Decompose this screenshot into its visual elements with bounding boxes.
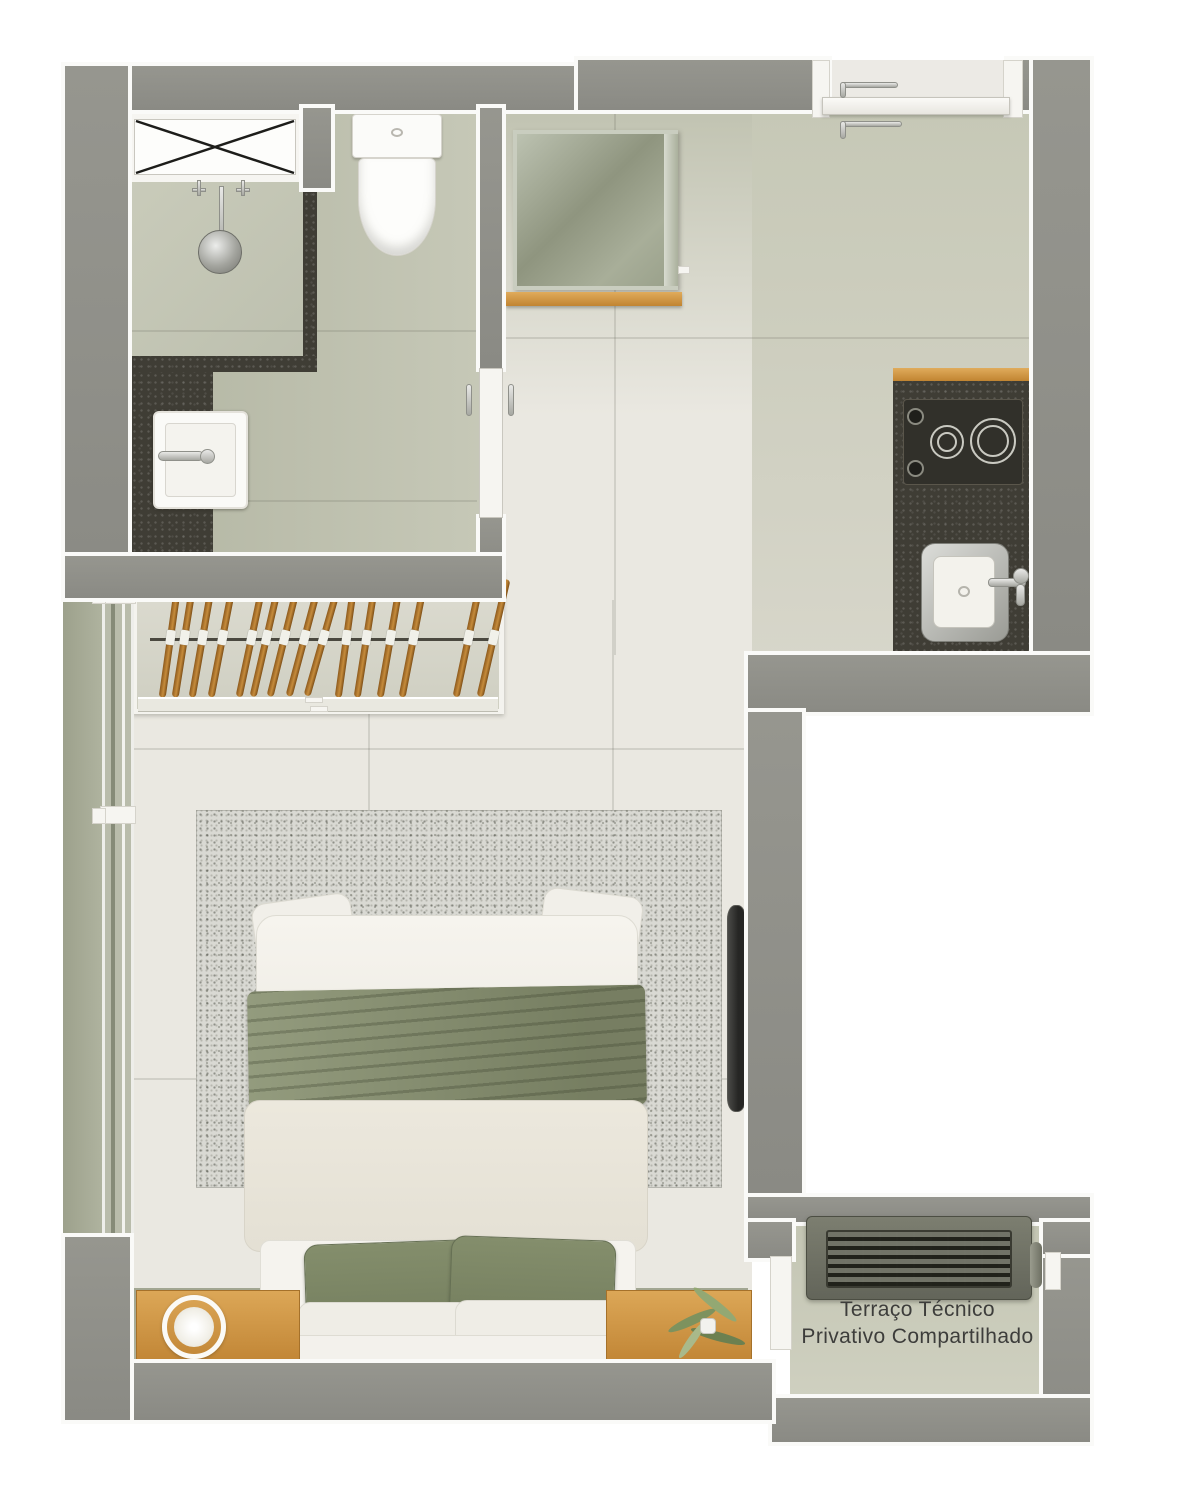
shower-valve: [197, 180, 201, 196]
closet-door-handle: [305, 697, 323, 703]
terrace-door-jamb: [770, 1256, 792, 1350]
tile-grout-line: [127, 330, 477, 332]
vanity-faucet: [158, 451, 204, 461]
balcony-strip: [63, 588, 105, 1258]
closet-door-handle: [310, 706, 328, 712]
vanity-counter-edge: [131, 356, 317, 372]
mirror-cabinet: [513, 130, 678, 290]
wall-bath-bottom: [65, 556, 502, 598]
wall-terrace-bottom: [772, 1398, 1090, 1442]
cooktop-knob: [907, 408, 924, 425]
tv-screen: [727, 905, 746, 1112]
kitchen-faucet-base: [1013, 568, 1029, 584]
wall-top-mid: [578, 60, 828, 110]
kitchen-faucet: [1016, 584, 1025, 606]
mirror-cabinet-handle: [664, 134, 678, 286]
terrace-label-line2: Privativo Compartilhado: [792, 1323, 1043, 1350]
shower-valve: [241, 180, 245, 196]
kitchen-counter-edge: [893, 368, 1035, 381]
kitchen-sink-drain: [958, 586, 970, 597]
cooktop-knob: [907, 460, 924, 477]
terrace-label-line1: Terraço Técnico: [792, 1296, 1043, 1323]
wall-left-upper: [65, 66, 128, 597]
bed-duvet-lower: [244, 1100, 648, 1252]
cooktop-burner-large: [970, 418, 1016, 464]
entry-door-handle: [840, 82, 846, 98]
wall-bedroom-bottom: [65, 1363, 772, 1420]
hall-shelf: [506, 292, 682, 306]
tile-grout-line: [127, 748, 748, 750]
bathroom-door: [479, 368, 503, 518]
duct-x-icon: [134, 119, 296, 175]
entry-door-handle: [840, 121, 846, 139]
vanity-faucet-knob: [200, 449, 215, 464]
duct-shaft: [127, 112, 303, 182]
window-frame: [102, 586, 134, 1258]
plant-pot: [700, 1318, 716, 1334]
cooktop-burner-small: [930, 425, 964, 459]
terrace-wall-cap: [1045, 1252, 1061, 1290]
bed-throw-blanket: [247, 985, 647, 1112]
shower-head: [198, 230, 242, 274]
window-handle: [92, 808, 106, 824]
bathroom-door-handle: [466, 384, 472, 416]
tile-grout-line: [502, 337, 1033, 339]
wall-shaft-stub: [303, 108, 331, 188]
wall-right-upper: [1033, 60, 1090, 662]
shower-partition: [303, 184, 317, 372]
wall-kitchen-bottom: [748, 655, 1090, 712]
terrace-label: Terraço Técnico Privativo Compartilhado: [792, 1296, 1043, 1356]
bathroom-door-handle: [508, 384, 514, 416]
mirror-cabinet-latch: [678, 266, 690, 274]
ac-pipe: [1030, 1242, 1042, 1288]
table-lamp-shade: [174, 1307, 214, 1347]
wall-bath-hall-upper: [480, 108, 502, 368]
ac-condenser-grille: [826, 1230, 1012, 1288]
wall-terrace-top-left: [748, 1222, 792, 1258]
void-area: [802, 712, 1092, 1199]
window-glass-line: [122, 592, 125, 1252]
entry-door-handle: [840, 121, 902, 127]
wall-left-lower: [65, 1237, 130, 1420]
bed-headboard: [252, 1335, 642, 1362]
wall-top-left: [65, 66, 578, 110]
wall-void-left: [748, 712, 802, 1199]
toilet-flush-button: [391, 128, 403, 137]
floorplan-canvas: Terraço Técnico Privativo Compartilhado: [0, 0, 1200, 1500]
entry-door: [822, 97, 1010, 115]
window-glass-line: [111, 592, 115, 1252]
entry-door-handle: [840, 82, 898, 88]
